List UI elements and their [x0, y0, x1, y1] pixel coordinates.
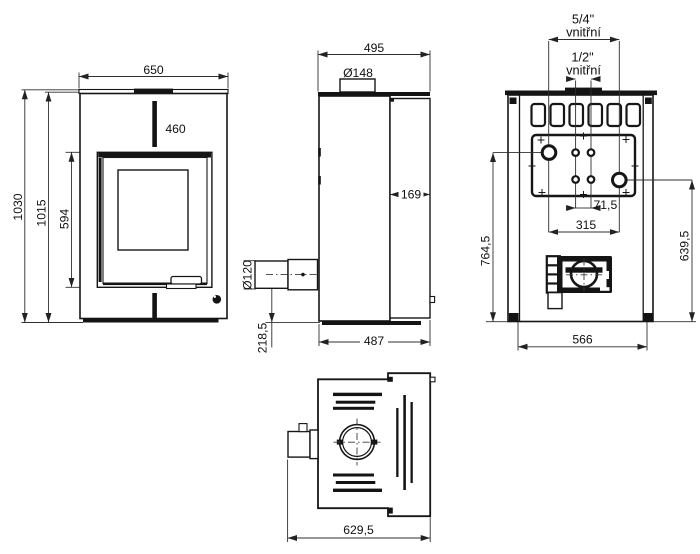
- label-small-fitting-type: vnitřní: [566, 63, 601, 78]
- dim-base-depth: 487: [364, 334, 385, 348]
- dim-body-height: 1015: [35, 199, 49, 226]
- dim-inlet-diameter: Ø120: [241, 260, 255, 290]
- rear-tab: [430, 377, 435, 382]
- rear-view: 5/4" vnitřní 1/2" vnitřní 71,5 315 764,5…: [479, 12, 697, 351]
- column-bottom-mark: [644, 313, 654, 321]
- side-body-outline: [319, 96, 390, 321]
- pipe-top-tab: [299, 424, 307, 432]
- side-base-bar: [322, 321, 421, 325]
- door-hinge-strip: [99, 158, 102, 282]
- door-handle: [171, 277, 202, 285]
- fitting-hole-large: [542, 146, 556, 160]
- step-corner-mark: [387, 377, 393, 382]
- fan-housing-notch: [604, 271, 610, 279]
- vent-bar: [333, 393, 382, 396]
- rear-vent-line: [396, 408, 398, 477]
- dim-rear-base-width: 566: [572, 333, 593, 347]
- dim-exchanger-depth: 169: [401, 188, 422, 202]
- top-view: 629,5: [288, 373, 435, 542]
- column-top-mark: [510, 98, 517, 105]
- dim-large-fitting-spacing: 315: [576, 218, 597, 232]
- door-top-bar: [98, 152, 211, 157]
- vent-bar: [336, 481, 376, 484]
- label-large-fitting-type: vnitřní: [566, 25, 601, 40]
- pipe-center-dot: [301, 273, 305, 277]
- air-inlet-pipe-top: [288, 432, 310, 458]
- rear-vent-line: [411, 402, 413, 483]
- fan-housing-slot: [600, 287, 610, 291]
- dim-door-width: 460: [165, 122, 186, 136]
- dim-inlet-height: 218,5: [256, 323, 270, 354]
- dim-upper-fitting-height: 764,5: [479, 236, 493, 267]
- rear-fitting-stub: [430, 297, 435, 303]
- door-hinge-side-mark: [318, 176, 321, 185]
- vent-bar: [333, 474, 374, 477]
- step-corner-mark: [387, 508, 393, 514]
- front-top-seam: [152, 101, 157, 147]
- stove-technical-drawing: 650 460 1030 1015 594: [0, 0, 700, 554]
- fitting-hole-small: [572, 149, 579, 156]
- dim-front-top-width: 650: [143, 63, 164, 77]
- fitting-hole-small: [588, 149, 595, 156]
- front-bottom-seam: [152, 293, 157, 319]
- vent-bar: [336, 401, 376, 404]
- air-inlet-flange-top: [310, 430, 318, 459]
- rear-vent-line: [403, 395, 406, 490]
- fitting-hole-small: [572, 176, 579, 183]
- door-handle-ledge: [167, 284, 197, 289]
- flue-clamp-mark: [371, 440, 377, 445]
- door-hinge-side-mark: [318, 148, 321, 157]
- fitting-hole-small: [588, 176, 595, 183]
- front-view: 650 460 1030 1015 594: [11, 63, 228, 323]
- column-top-mark: [645, 98, 652, 105]
- column-bottom-mark: [509, 313, 519, 321]
- knob-highlight: [214, 296, 216, 298]
- drawing-canvas: 650 460 1030 1015 594: [0, 0, 700, 554]
- dim-door-height: 594: [58, 209, 72, 230]
- housing-top-mark: [390, 99, 394, 102]
- dim-side-top-depth: 495: [364, 41, 385, 55]
- dim-lower-fitting-height: 639,5: [678, 231, 692, 262]
- fitting-hole-large: [613, 173, 627, 187]
- vent-bar: [333, 407, 374, 410]
- dim-small-fitting-spacing: 71,5: [594, 198, 618, 212]
- door-glass: [118, 170, 188, 250]
- dim-total-depth: 629,5: [343, 523, 374, 537]
- front-base-bar: [83, 319, 219, 323]
- dim-total-height: 1030: [11, 193, 25, 220]
- heat-exchanger-housing: [390, 99, 430, 319]
- fan-bracket: [548, 293, 562, 309]
- vent-bar: [333, 489, 382, 492]
- rear-top-plate-bump: [565, 88, 602, 91]
- dim-flue-diameter: Ø148: [343, 66, 373, 80]
- side-view: 495 Ø148 169 Ø120 218,5 487: [241, 41, 435, 353]
- flue-collar: [340, 79, 375, 92]
